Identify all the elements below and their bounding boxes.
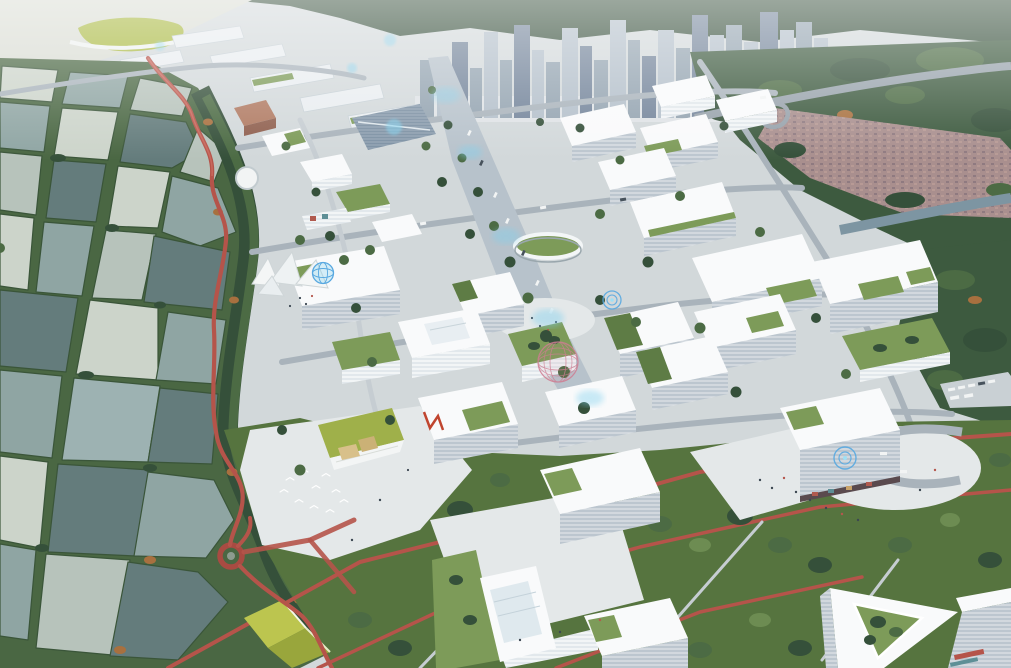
- atmospheric-haze: [0, 0, 1011, 160]
- hologram-globe: [313, 263, 334, 284]
- hologram-dome: [538, 342, 578, 382]
- aerial-render-canvas: [0, 0, 1011, 668]
- round-pavilion: [236, 167, 258, 189]
- rendered-scene: [0, 0, 1011, 668]
- ring-pavilion-green-roof: [515, 234, 581, 262]
